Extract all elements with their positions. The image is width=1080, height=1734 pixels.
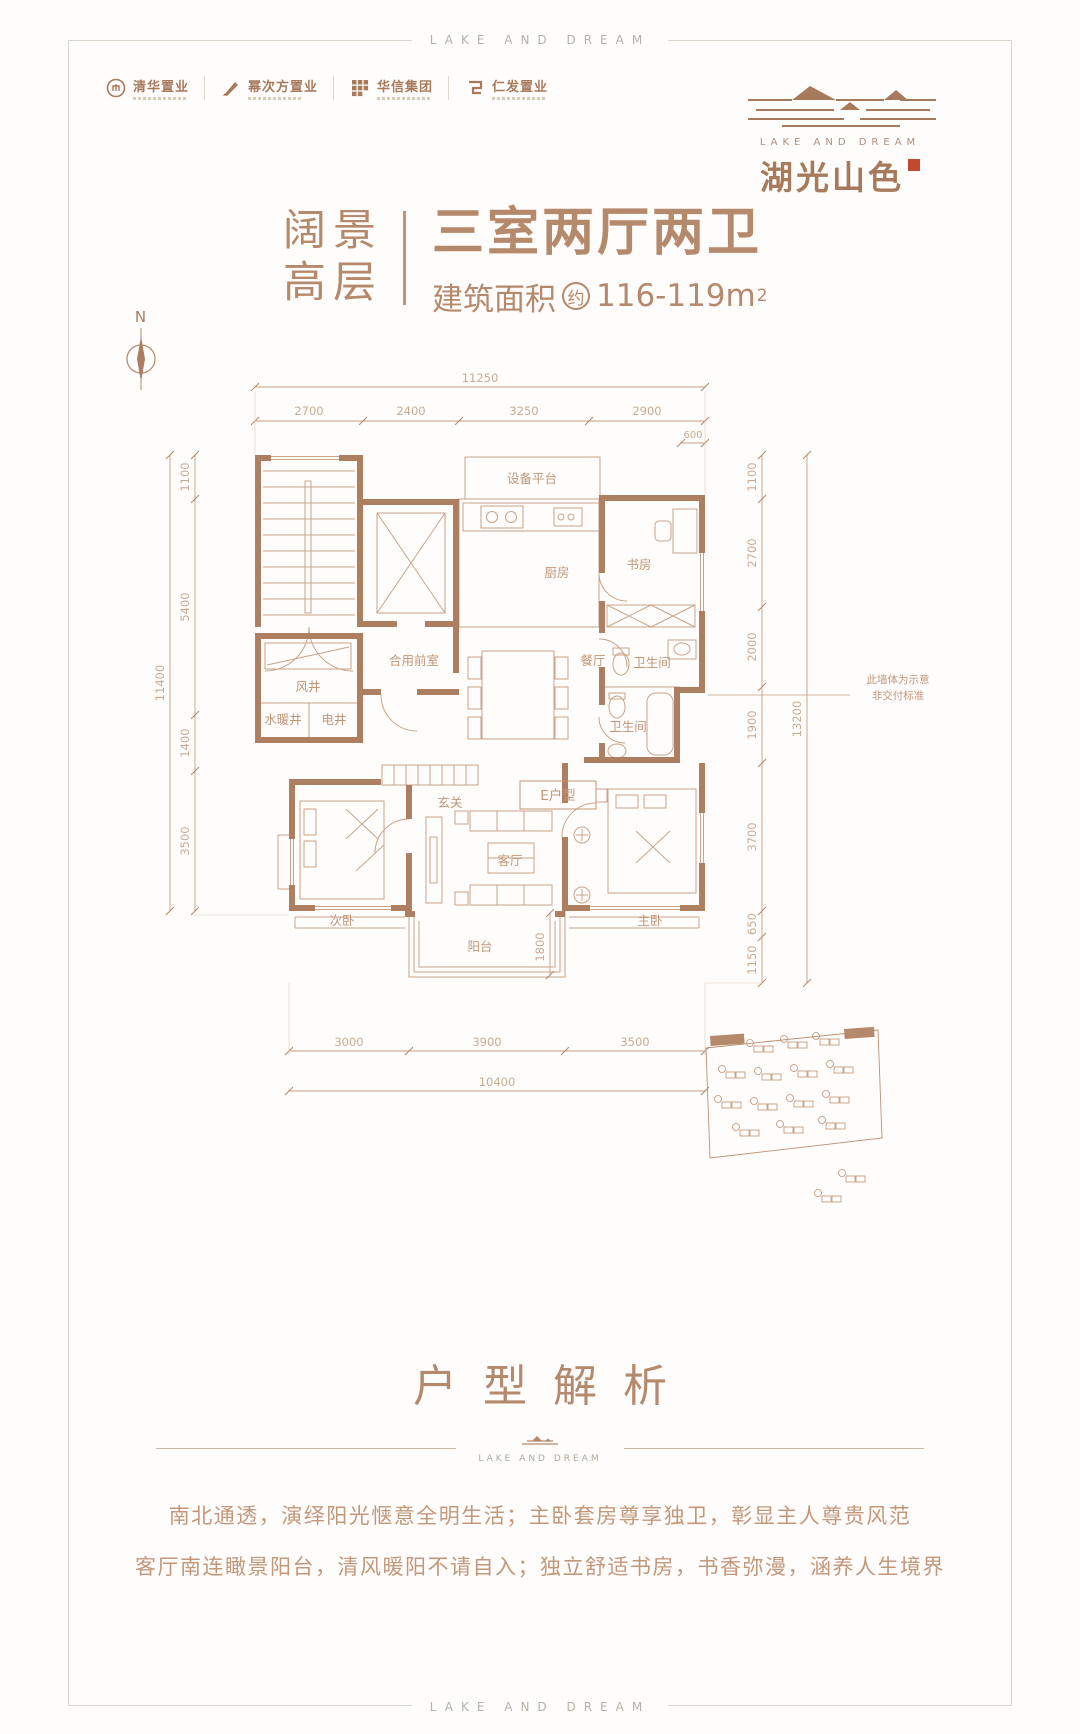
dim-top-offset: 600 bbox=[683, 430, 702, 441]
ring-building-icon bbox=[105, 77, 127, 99]
unit-type-label: E户型 bbox=[540, 787, 576, 804]
dim-left-total: 11400 bbox=[153, 665, 167, 702]
wall-note: 此墙体为示意 非交付标准 bbox=[867, 673, 930, 702]
logo-name: 清华置业 bbox=[133, 76, 189, 95]
room-study: 书房 bbox=[626, 557, 651, 572]
divider-english-text: LAKE AND DREAM bbox=[478, 1454, 601, 1464]
brand-chinese: 湖光山色 bbox=[733, 151, 947, 199]
frame-top-label: LAKE AND DREAM bbox=[412, 33, 668, 47]
title-divider bbox=[403, 211, 406, 305]
logo-qinghua: 清华置业 bbox=[90, 76, 204, 100]
divider-center: LAKE AND DREAM bbox=[478, 1432, 601, 1464]
brand-english: LAKE AND DREAM bbox=[733, 137, 947, 148]
room-kitchen: 厨房 bbox=[544, 565, 569, 580]
room-entry: 玄关 bbox=[437, 795, 462, 810]
dim-bottom-seg: 3000 bbox=[334, 1035, 363, 1049]
logo-subtext bbox=[492, 97, 546, 100]
room-master-bedroom: 主卧 bbox=[637, 913, 662, 928]
spiral-icon bbox=[464, 77, 486, 99]
mountain-lake-logo bbox=[740, 80, 940, 128]
logo-micifang: 幂次方置业 bbox=[204, 76, 333, 100]
brand-block: LAKE AND DREAM 湖光山色 bbox=[733, 80, 947, 199]
logo-subtext bbox=[377, 97, 431, 100]
dim-left-seg: 1400 bbox=[178, 728, 192, 757]
logo-name: 幂次方置业 bbox=[248, 76, 318, 95]
dim-bottom-seg: 3500 bbox=[620, 1035, 649, 1049]
room-living: 客厅 bbox=[497, 853, 522, 868]
poster-page: LAKE AND DREAM LAKE AND DREAM 清华置业 幂次方置业 bbox=[0, 0, 1080, 1734]
dim-right-seg: 1100 bbox=[745, 462, 759, 491]
room-front-room: 合用前室 bbox=[389, 653, 439, 668]
logo-subtext bbox=[133, 97, 187, 100]
dim-top-seg: 2900 bbox=[632, 404, 661, 418]
dim-top-seg: 3250 bbox=[509, 404, 538, 418]
site-plan bbox=[696, 1024, 888, 1220]
divider-line-left bbox=[156, 1448, 456, 1449]
room-electric-shaft: 电井 bbox=[321, 712, 346, 727]
brand-name-text: 湖光山色 bbox=[760, 158, 904, 197]
dim-right-seg: 1900 bbox=[745, 710, 759, 739]
site-plan-buildings bbox=[715, 1033, 866, 1203]
dim-right-total: 13200 bbox=[790, 701, 804, 738]
room-wind-shaft: 风井 bbox=[295, 679, 320, 694]
dim-bottom-total: 10400 bbox=[479, 1075, 516, 1089]
dim-right-seg: 2000 bbox=[745, 632, 759, 661]
dim-right-seg: 1150 bbox=[745, 945, 759, 974]
room-balcony: 阳台 bbox=[467, 939, 492, 954]
room-equipment-platform: 设备平台 bbox=[507, 471, 557, 486]
logo-renfa: 仁发置业 bbox=[448, 76, 563, 100]
unit-title: 三室两厅两卫 bbox=[432, 206, 768, 261]
area-line: 建筑面积 约 116-119m 2 bbox=[432, 274, 768, 319]
dim-right-seg: 650 bbox=[745, 913, 759, 935]
walls-layer bbox=[255, 455, 705, 917]
dim-left-seg: 1100 bbox=[178, 462, 192, 491]
logo-huaxin: 华信集团 bbox=[333, 76, 448, 100]
tagline: 阔景 高层 bbox=[283, 206, 383, 309]
dim-right-seg: 2700 bbox=[745, 538, 759, 567]
dim-top-seg: 2700 bbox=[294, 404, 323, 418]
frame-bottom-label: LAKE AND DREAM bbox=[412, 1700, 668, 1714]
red-seal bbox=[908, 159, 920, 171]
dim-top-total: 11250 bbox=[462, 371, 499, 385]
room-bedroom2: 次卧 bbox=[329, 913, 354, 928]
brush-icon bbox=[220, 77, 242, 99]
tagline-line1: 阔景 bbox=[283, 206, 383, 258]
dim-left-seg: 3500 bbox=[178, 826, 192, 855]
title-block: 阔景 高层 三室两厅两卫 建筑面积 约 116-119m 2 bbox=[283, 206, 768, 319]
title-group: 三室两厅两卫 建筑面积 约 116-119m 2 bbox=[432, 206, 768, 319]
description-paragraph-1: 南北通透，演绎阳光惬意全明生活；主卧套房尊享独卫，彰显主人尊贵风范 bbox=[0, 1500, 1080, 1530]
wall-note-line1: 此墙体为示意 bbox=[867, 673, 930, 686]
logo-subtext bbox=[248, 97, 302, 100]
description-paragraph-2: 客厅南连瞰景阳台，清风暖阳不请自入；独立舒适书房，书香弥漫，涵养人生境界 bbox=[0, 1551, 1080, 1581]
section-title: 户型解析 bbox=[0, 1350, 1080, 1414]
dimension-labels: 11250 2700 2400 3250 2900 600 11400 1100… bbox=[153, 371, 804, 1089]
dim-balcony-depth: 1800 bbox=[533, 932, 547, 961]
approx-circle: 约 bbox=[562, 282, 590, 310]
area-label: 建筑面积 bbox=[432, 274, 556, 319]
area-value: 116-119m bbox=[596, 278, 756, 314]
site-plan-boundary bbox=[706, 1030, 882, 1158]
logo-name: 华信集团 bbox=[377, 76, 433, 95]
developer-logos: 清华置业 幂次方置业 华信集团 bbox=[90, 76, 563, 100]
room-plumbing-shaft: 水暖井 bbox=[264, 712, 302, 727]
floor-plan: 11250 2700 2400 3250 2900 600 11400 1100… bbox=[150, 365, 960, 1115]
site-plan-highlight-blocks bbox=[710, 1027, 875, 1046]
divider-line-right bbox=[624, 1448, 924, 1449]
room-dining: 餐厅 bbox=[580, 653, 605, 668]
logo-name: 仁发置业 bbox=[492, 76, 548, 95]
wall-note-line2: 非交付标准 bbox=[872, 689, 925, 702]
dim-bottom-seg: 3900 bbox=[472, 1035, 501, 1049]
tagline-line2: 高层 bbox=[283, 258, 383, 310]
section-divider: LAKE AND DREAM bbox=[0, 1432, 1080, 1464]
compass-north-label: N bbox=[114, 308, 168, 326]
mini-mountain-icon bbox=[520, 1433, 560, 1447]
dim-top-seg: 2400 bbox=[396, 404, 425, 418]
room-bath2: 卫生间 bbox=[609, 719, 647, 734]
dim-right-seg: 3700 bbox=[745, 822, 759, 851]
grid-icon bbox=[349, 77, 371, 99]
area-superscript: 2 bbox=[757, 286, 768, 306]
dim-left-seg: 5400 bbox=[178, 592, 192, 621]
room-bath1: 卫生间 bbox=[633, 655, 671, 670]
